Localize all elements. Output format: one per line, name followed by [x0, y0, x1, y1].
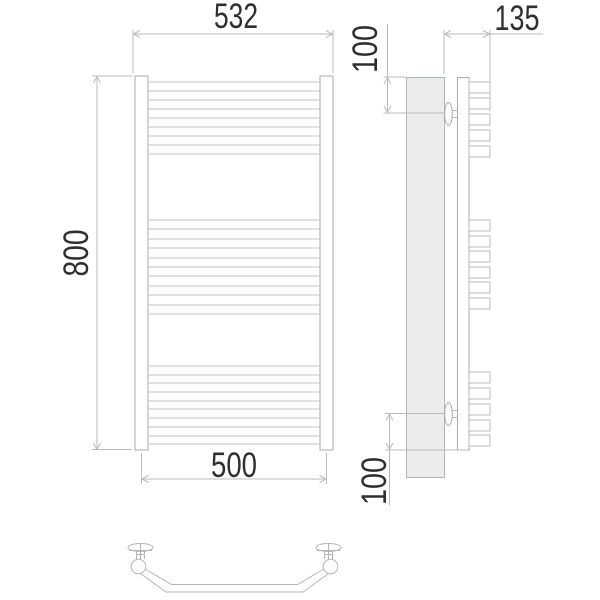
- plan-ball-left: [131, 559, 146, 574]
- bracket-cup: [445, 103, 453, 126]
- plan-neck-left: [129, 544, 152, 560]
- side-rung: [469, 420, 490, 431]
- front-left-post: [135, 76, 148, 450]
- front-rung-group-top: [148, 82, 320, 154]
- side-rung: [469, 267, 490, 278]
- side-rung: [469, 251, 490, 262]
- plan-neck-right: [317, 544, 340, 560]
- side-rung: [469, 236, 490, 247]
- plan-ball-right: [323, 559, 338, 574]
- drawing-sheet: 532 800 500 135 100 100: [0, 0, 600, 600]
- dim-label-overall-height: 800: [57, 230, 96, 277]
- side-rungs-top: [469, 82, 490, 157]
- side-rung: [469, 372, 490, 383]
- bracket-stem: [452, 411, 458, 418]
- front-right-post: [320, 76, 333, 450]
- side-rungs-bottom: [469, 372, 490, 446]
- side-view: [407, 78, 491, 478]
- dim-front-overall-height: 800: [57, 76, 132, 450]
- side-rung: [469, 388, 490, 399]
- side-rung: [469, 298, 490, 309]
- side-rung: [469, 146, 490, 157]
- dim-front-bottom-span: 500: [142, 446, 327, 485]
- front-rung-group-bottom: [148, 366, 320, 444]
- extension-lines: [133, 30, 333, 73]
- towel-radiator-technical-drawing: 532 800 500 135 100 100: [0, 0, 600, 600]
- dim-label-bottom-span: 500: [211, 446, 257, 485]
- side-rung: [469, 282, 490, 293]
- side-rung: [469, 220, 490, 231]
- wall-bracket-top: [445, 103, 458, 126]
- side-rung: [469, 98, 490, 109]
- front-rung-group-middle: [148, 220, 320, 314]
- side-rung: [469, 114, 490, 125]
- side-rung: [469, 435, 490, 446]
- wall-bracket-bottom: [445, 403, 458, 426]
- plan-view-detail: [128, 544, 341, 593]
- dim-label-overall-width: 532: [214, 0, 258, 36]
- plan-tube-inner-edge: [145, 569, 324, 585]
- side-rungs-middle: [469, 220, 490, 309]
- wall-section: [407, 78, 445, 478]
- bracket-cup: [445, 403, 453, 426]
- side-collector-tube: [458, 78, 470, 451]
- side-rung: [469, 404, 490, 415]
- dim-front-overall-width: 532: [133, 0, 333, 73]
- dim-label-top-offset: 100: [346, 25, 385, 73]
- dim-label-bottom-offset: 100: [355, 457, 394, 505]
- extension-lines: [92, 76, 132, 450]
- bracket-stem: [452, 111, 458, 118]
- dim-label-depth: 135: [495, 0, 540, 38]
- front-view: [135, 76, 333, 450]
- side-rung: [469, 82, 490, 93]
- side-rung: [469, 130, 490, 141]
